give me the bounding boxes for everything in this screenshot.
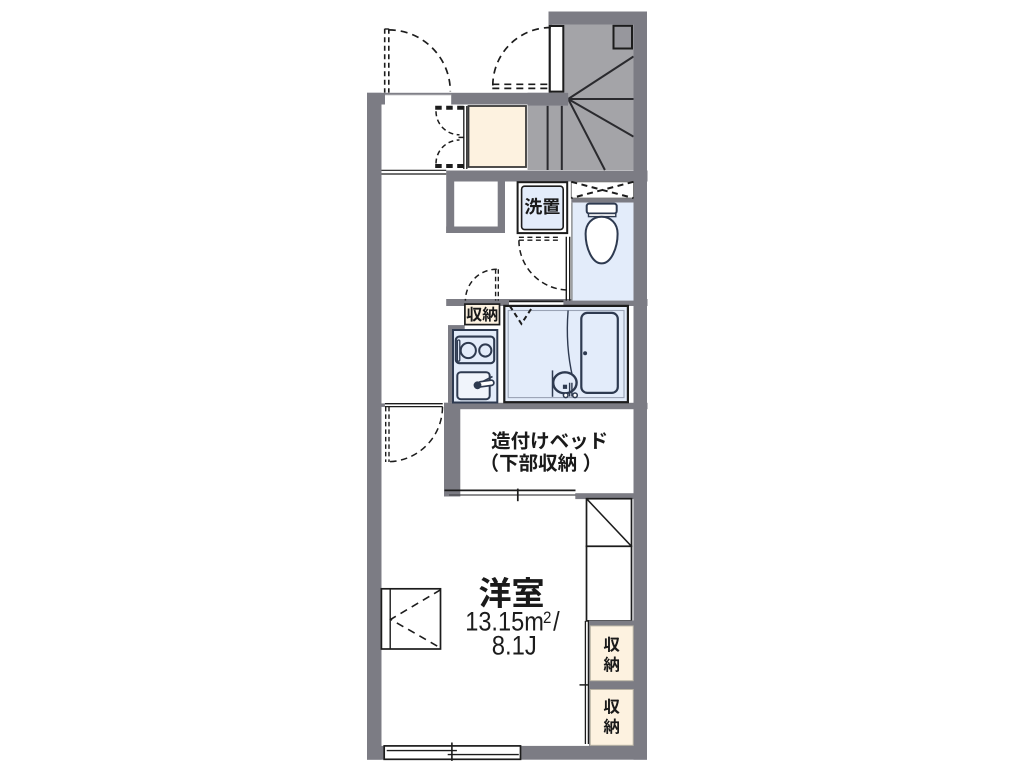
svg-text:8.1J: 8.1J xyxy=(492,632,537,661)
